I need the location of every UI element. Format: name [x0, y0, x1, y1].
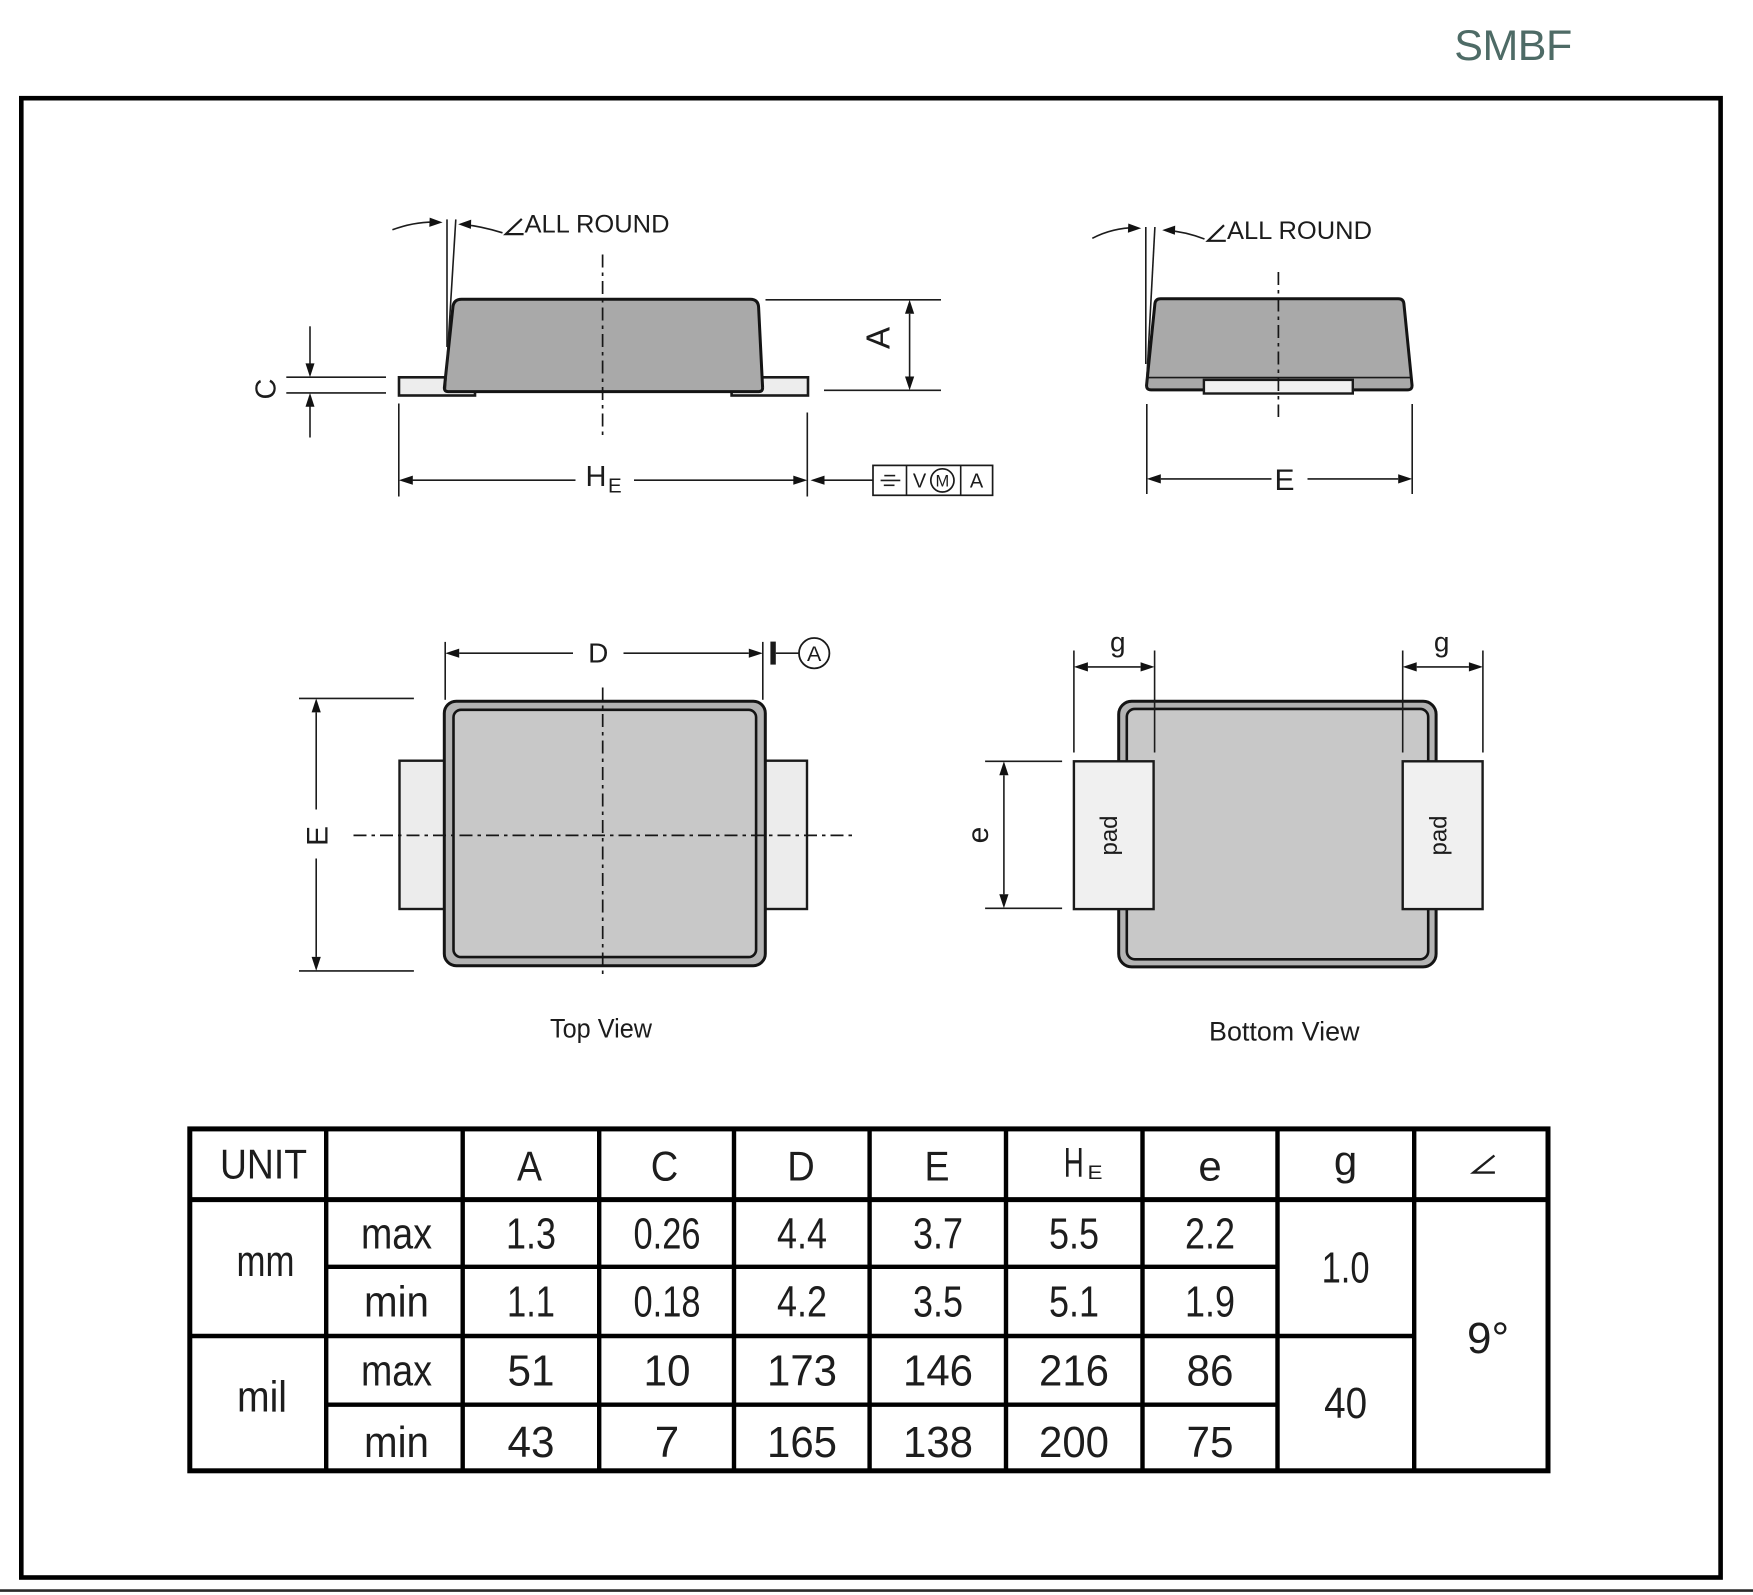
svg-text:4.2: 4.2: [777, 1278, 827, 1327]
svg-text:A: A: [807, 642, 822, 666]
svg-text:E: E: [1275, 464, 1295, 497]
svg-text:mil: mil: [237, 1373, 287, 1422]
svg-text:max: max: [361, 1347, 432, 1396]
svg-text:138: 138: [903, 1418, 973, 1467]
svg-text:216: 216: [1039, 1347, 1109, 1396]
svg-text:UNIT: UNIT: [220, 1141, 307, 1188]
svg-text:A: A: [970, 471, 984, 493]
svg-text:E: E: [925, 1143, 950, 1190]
svg-text:4.4: 4.4: [777, 1210, 827, 1259]
svg-text:D: D: [787, 1143, 815, 1190]
svg-text:1.1: 1.1: [507, 1278, 555, 1327]
svg-text:3.5: 3.5: [913, 1278, 963, 1327]
svg-text:75: 75: [1187, 1418, 1234, 1467]
svg-text:A: A: [517, 1143, 542, 1190]
svg-text:e: e: [962, 827, 995, 844]
svg-text:9°: 9°: [1467, 1314, 1509, 1363]
svg-text:1.9: 1.9: [1185, 1278, 1235, 1327]
svg-text:HE: HE: [586, 461, 622, 498]
svg-text:7: 7: [655, 1418, 679, 1467]
svg-text:min: min: [364, 1418, 429, 1467]
svg-text:E: E: [1088, 1163, 1103, 1184]
svg-text:g: g: [1434, 627, 1450, 658]
svg-text:ALL ROUND: ALL ROUND: [1227, 217, 1372, 245]
svg-text:g: g: [1110, 627, 1126, 658]
svg-text:e: e: [1198, 1143, 1221, 1190]
svg-text:C: C: [651, 1143, 679, 1190]
svg-text:M: M: [936, 472, 950, 490]
svg-text:200: 200: [1039, 1418, 1109, 1467]
svg-text:165: 165: [767, 1418, 837, 1467]
svg-text:5.1: 5.1: [1049, 1278, 1099, 1327]
svg-text:E: E: [302, 826, 335, 846]
svg-text:0.26: 0.26: [634, 1210, 701, 1259]
svg-text:pad: pad: [1425, 815, 1452, 855]
svg-text:mm: mm: [237, 1237, 295, 1286]
svg-text:Top View: Top View: [550, 1014, 652, 1044]
svg-text:86: 86: [1187, 1347, 1234, 1396]
svg-text:3.7: 3.7: [913, 1210, 963, 1259]
svg-text:C: C: [251, 379, 283, 400]
svg-text:43: 43: [508, 1418, 555, 1467]
svg-text:5.5: 5.5: [1049, 1210, 1099, 1259]
svg-text:D: D: [588, 638, 608, 669]
svg-text:1.3: 1.3: [506, 1210, 556, 1259]
svg-text:173: 173: [767, 1347, 837, 1396]
svg-text:2.2: 2.2: [1185, 1210, 1235, 1259]
svg-text:0.18: 0.18: [634, 1278, 701, 1327]
svg-text:H: H: [1064, 1139, 1084, 1186]
svg-text:max: max: [361, 1210, 432, 1259]
svg-text:ALL ROUND: ALL ROUND: [525, 211, 670, 239]
svg-text:10: 10: [644, 1347, 691, 1396]
svg-text:40: 40: [1324, 1379, 1367, 1428]
svg-text:1.0: 1.0: [1322, 1244, 1370, 1293]
svg-text:146: 146: [903, 1347, 973, 1396]
svg-text:g: g: [1334, 1137, 1357, 1184]
svg-text:SMBF: SMBF: [1454, 22, 1571, 70]
svg-text:Bottom View: Bottom View: [1209, 1017, 1360, 1047]
svg-text:pad: pad: [1096, 815, 1123, 855]
svg-text:51: 51: [508, 1347, 555, 1396]
svg-text:V: V: [913, 471, 927, 493]
svg-text:A: A: [860, 327, 897, 349]
svg-text:min: min: [364, 1278, 429, 1327]
